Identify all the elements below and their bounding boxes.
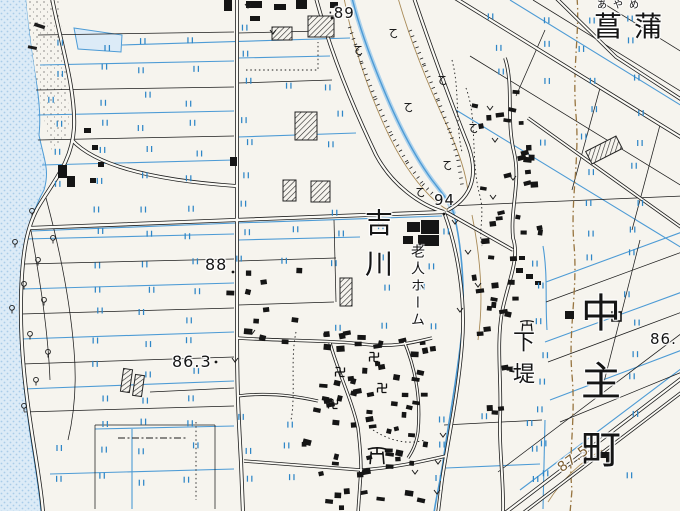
levee-tick xyxy=(455,155,458,156)
building xyxy=(386,428,392,434)
rice-paddy-symbol xyxy=(545,41,549,47)
rice-paddy-symbol xyxy=(282,258,286,264)
dry-field-symbol xyxy=(465,250,471,254)
large-building-hatched xyxy=(295,112,317,140)
field-boundary xyxy=(632,125,660,230)
building xyxy=(344,488,350,494)
building xyxy=(430,346,436,352)
building xyxy=(318,471,324,476)
building xyxy=(253,319,259,324)
field-boundary xyxy=(46,198,75,440)
rice-paddy-symbol xyxy=(543,352,547,358)
mulberry-field-symbol xyxy=(390,30,397,38)
rice-paddy-symbol xyxy=(139,67,143,73)
building xyxy=(490,297,498,302)
large-building-hatched xyxy=(133,374,145,396)
road-casing xyxy=(505,378,680,511)
temple-manji-symbol xyxy=(378,384,387,393)
levee-tick xyxy=(367,79,370,80)
building xyxy=(92,145,98,150)
levee-tick xyxy=(450,138,453,139)
rice-paddy-symbol xyxy=(248,139,252,145)
building xyxy=(410,351,418,357)
levee-tick xyxy=(441,111,444,112)
rice-paddy-symbol xyxy=(185,233,189,239)
building xyxy=(274,4,286,10)
map-symbols xyxy=(10,4,644,494)
levee-tick xyxy=(459,178,463,179)
building xyxy=(376,497,385,502)
rice-paddy-symbol xyxy=(93,338,97,344)
rice-paddy-symbol xyxy=(139,448,143,454)
building xyxy=(516,268,523,273)
building xyxy=(472,274,477,281)
rice-paddy-symbol xyxy=(336,325,340,331)
rice-paddy-symbol xyxy=(103,421,107,427)
building xyxy=(416,370,424,376)
building xyxy=(250,16,260,21)
rice-paddy-symbol xyxy=(193,258,197,264)
rice-paddy-symbol xyxy=(497,45,501,51)
water-channel xyxy=(95,426,234,429)
rice-paddy-symbol xyxy=(533,261,537,267)
rice-paddy-symbol xyxy=(141,207,145,213)
dry-field-symbol xyxy=(412,470,418,474)
building xyxy=(322,396,330,401)
field-boundary xyxy=(238,258,336,261)
building xyxy=(565,311,574,319)
municipal-boundary-line xyxy=(570,0,578,511)
building xyxy=(366,410,372,415)
levee-tick xyxy=(422,63,425,64)
rice-paddy-symbol xyxy=(482,413,486,419)
levee-tick xyxy=(434,93,437,94)
field-boundary xyxy=(546,252,680,302)
rice-paddy-symbol xyxy=(242,117,246,123)
levee-tick xyxy=(420,58,423,59)
building xyxy=(391,401,398,406)
rice-paddy-symbol xyxy=(287,83,291,89)
building xyxy=(501,365,508,371)
levee-tick xyxy=(429,82,432,83)
map-canvas: あやめ 菖蒲 吉川 老人ホーム 下堤 中主町 ·89 94 88 86.3 86… xyxy=(0,0,680,511)
large-building-hatched xyxy=(340,278,352,306)
building xyxy=(348,376,355,381)
levee-tick xyxy=(381,115,384,116)
field-boundary xyxy=(604,240,640,382)
building xyxy=(333,453,339,460)
field-boundary xyxy=(238,80,332,83)
building xyxy=(481,238,490,244)
building xyxy=(420,341,426,345)
water-channel xyxy=(238,237,360,240)
rice-paddy-symbol xyxy=(633,351,637,357)
building xyxy=(355,342,362,347)
rice-paddy-symbol xyxy=(184,477,188,483)
water-channel xyxy=(21,332,234,339)
road-fill xyxy=(446,212,513,250)
building xyxy=(405,490,414,497)
rice-paddy-symbol xyxy=(146,92,150,98)
road-casing xyxy=(414,0,473,210)
spot-height-dot xyxy=(232,271,235,274)
rice-paddy-symbol xyxy=(284,442,288,448)
building xyxy=(362,368,367,374)
rice-paddy-symbol xyxy=(590,18,594,24)
levee-tick xyxy=(371,91,374,92)
building xyxy=(323,344,331,351)
building xyxy=(515,215,521,220)
building xyxy=(357,335,366,340)
building xyxy=(512,90,519,94)
rice-paddy-symbol xyxy=(382,323,386,329)
large-building-hatched xyxy=(120,368,132,392)
building xyxy=(296,0,307,9)
roads xyxy=(21,0,680,511)
large-building-hatched xyxy=(272,27,292,40)
lake-and-shore xyxy=(0,0,122,511)
water-channel xyxy=(510,0,680,106)
shrine-torii-symbol xyxy=(520,321,534,333)
building xyxy=(421,393,428,397)
building xyxy=(407,222,420,232)
broadleaf-tree-symbol xyxy=(34,377,39,385)
rice-paddy-symbol xyxy=(541,440,545,446)
building xyxy=(332,420,339,426)
building xyxy=(343,330,351,336)
rice-paddy-symbol xyxy=(197,151,201,157)
building xyxy=(411,377,419,382)
rice-paddy-symbol xyxy=(149,287,153,293)
building xyxy=(408,433,415,437)
footpath xyxy=(291,332,296,420)
dry-field-symbol xyxy=(487,106,493,110)
levee-tick xyxy=(374,99,377,100)
field-boundary xyxy=(38,136,234,140)
building xyxy=(245,289,251,295)
rice-paddy-symbol xyxy=(379,254,383,260)
building xyxy=(526,274,533,279)
rice-paddy-symbol xyxy=(100,473,104,479)
rice-paddy-symbol xyxy=(186,101,190,107)
field-boundary xyxy=(21,308,234,314)
building xyxy=(385,452,394,457)
building xyxy=(530,181,538,187)
rice-paddy-symbol xyxy=(628,37,632,43)
dry-field-symbol xyxy=(435,460,441,464)
building xyxy=(367,392,375,398)
rice-paddy-symbol xyxy=(55,149,59,155)
building xyxy=(351,422,357,427)
building xyxy=(406,405,413,411)
building xyxy=(230,157,237,166)
rice-paddy-symbol xyxy=(101,100,105,106)
large-building-hatched xyxy=(311,181,330,202)
rice-paddy-symbol xyxy=(536,318,540,324)
building xyxy=(291,317,298,323)
rice-paddy-symbol xyxy=(141,38,145,44)
building xyxy=(386,464,394,469)
rice-paddy-symbol xyxy=(293,226,297,232)
building xyxy=(330,2,338,8)
building xyxy=(476,288,485,293)
rice-paddy-symbol xyxy=(102,64,106,70)
levee-tick xyxy=(458,172,462,173)
dry-field-symbol xyxy=(490,195,496,199)
levee-tick xyxy=(350,33,353,34)
building xyxy=(319,384,328,388)
levee-tick xyxy=(402,155,405,157)
levee-tick xyxy=(399,150,402,152)
building xyxy=(395,457,401,462)
levee-tick xyxy=(364,74,367,75)
field-boundary xyxy=(30,225,50,380)
building xyxy=(480,186,487,191)
rice-paddy-symbol xyxy=(242,25,246,31)
rice-paddy-symbol xyxy=(138,125,142,131)
levee-tick xyxy=(393,139,396,141)
building xyxy=(260,279,267,285)
building xyxy=(336,346,345,353)
levee-tick xyxy=(352,38,355,39)
levee-tick xyxy=(437,100,440,101)
rice-paddy-symbol xyxy=(429,263,433,269)
building xyxy=(357,472,364,478)
temple-manji-symbol xyxy=(370,353,379,362)
levee-tick xyxy=(423,65,426,66)
broadleaf-tree-symbol xyxy=(36,257,41,265)
levee-tick xyxy=(422,183,425,186)
building xyxy=(488,255,494,259)
levee-tick xyxy=(453,149,456,150)
building xyxy=(478,123,484,129)
rice-paddy-symbol xyxy=(146,341,150,347)
building xyxy=(226,290,234,295)
road-fill xyxy=(244,461,361,470)
building xyxy=(538,229,543,235)
rice-paddy-symbol xyxy=(194,442,198,448)
levee-tick xyxy=(449,132,452,133)
building xyxy=(409,461,414,466)
dry-field-symbol xyxy=(440,433,446,437)
levee-tick xyxy=(386,126,389,127)
levee-tick xyxy=(376,104,379,105)
field-boundary xyxy=(22,357,234,364)
inlet-pond xyxy=(74,28,122,52)
rice-paddy-symbol xyxy=(102,447,106,453)
rice-paddy-symbol xyxy=(638,140,642,146)
building xyxy=(491,282,499,288)
building xyxy=(395,449,403,456)
river xyxy=(352,0,463,511)
rice-paddy-symbol xyxy=(146,371,150,377)
building xyxy=(58,165,67,178)
levee-tick xyxy=(406,162,409,164)
building xyxy=(375,362,381,367)
building xyxy=(529,155,535,161)
rice-paddy-symbol xyxy=(243,51,247,57)
large-building-hatched xyxy=(308,16,334,37)
building xyxy=(334,492,341,498)
monument-square xyxy=(612,312,621,321)
levee-tick xyxy=(425,71,428,72)
spot-height-dot xyxy=(215,361,218,364)
building xyxy=(525,170,531,175)
rice-paddy-symbol xyxy=(195,288,199,294)
building xyxy=(477,331,484,336)
levee-tick xyxy=(417,176,420,178)
rice-paddy-symbol xyxy=(586,200,590,206)
rice-paddy-symbol xyxy=(329,141,333,147)
levee-tick xyxy=(369,85,372,86)
building xyxy=(393,374,400,381)
rice-paddy-symbol xyxy=(241,201,245,207)
building xyxy=(421,220,439,234)
building xyxy=(67,176,75,187)
rice-paddy-symbol xyxy=(545,78,549,84)
building xyxy=(84,128,91,133)
rice-paddy-symbol xyxy=(189,206,193,212)
building xyxy=(332,461,339,465)
rice-paddy-symbol xyxy=(103,395,107,401)
levee-tick xyxy=(457,166,461,167)
building xyxy=(244,328,253,335)
building xyxy=(491,302,496,308)
rice-paddy-symbol xyxy=(630,373,634,379)
rice-paddy-symbol xyxy=(187,317,191,323)
field-boundary xyxy=(24,259,234,264)
building xyxy=(487,405,493,411)
water-channel xyxy=(50,469,234,474)
building xyxy=(521,230,527,234)
rice-paddy-symbol xyxy=(326,84,330,90)
water-channel xyxy=(40,61,234,65)
broadleaf-tree-symbol xyxy=(51,235,56,243)
building xyxy=(282,339,289,344)
mulberry-field-symbol xyxy=(405,104,412,112)
building xyxy=(497,210,505,215)
contour-lines xyxy=(344,0,602,502)
levee-tick xyxy=(420,181,423,183)
building xyxy=(369,424,377,428)
rice-paddy-symbol xyxy=(194,368,198,374)
building xyxy=(495,112,504,117)
water-channel xyxy=(22,283,234,289)
building xyxy=(519,121,524,125)
building xyxy=(365,416,373,422)
rice-paddy-symbol xyxy=(540,379,544,385)
levee-tick xyxy=(418,52,421,53)
building xyxy=(519,256,525,260)
levee-tick xyxy=(354,44,357,45)
rice-paddy-symbol xyxy=(100,147,104,153)
levee-tick xyxy=(384,120,387,121)
rice-paddy-symbol xyxy=(187,337,191,343)
rice-paddy-symbol xyxy=(440,442,444,448)
levee-tick xyxy=(456,160,460,161)
rice-paddy-symbol xyxy=(632,163,636,169)
building xyxy=(296,268,302,274)
rice-paddy-symbol xyxy=(338,111,342,117)
dry-field-symbol xyxy=(475,283,481,287)
rice-paddy-symbol xyxy=(139,480,143,486)
building xyxy=(402,393,409,397)
building xyxy=(512,297,518,301)
building xyxy=(333,380,341,387)
building xyxy=(526,145,532,151)
rice-paddy-symbol xyxy=(57,445,61,451)
rice-paddy-symbol xyxy=(94,206,98,212)
building xyxy=(483,326,491,332)
rice-paddy-symbol xyxy=(444,228,448,234)
rice-paddy-symbol xyxy=(141,419,145,425)
levee-tick xyxy=(427,76,430,77)
rice-paddy-symbol xyxy=(245,229,249,235)
rice-paddy-symbol xyxy=(589,169,593,175)
rice-paddy-symbol xyxy=(103,120,107,126)
rice-paddy-symbol xyxy=(139,309,143,315)
rice-paddy-symbol xyxy=(57,476,61,482)
building xyxy=(489,221,496,227)
building xyxy=(313,407,321,413)
building xyxy=(224,0,232,11)
rice-paddy-symbol xyxy=(538,406,542,412)
levee-tick xyxy=(405,160,408,162)
rice-paddy-symbol xyxy=(589,231,593,237)
levee-tick xyxy=(426,188,429,191)
mulberry-field-symbol xyxy=(444,162,451,170)
rice-paddy-symbol xyxy=(587,254,591,260)
rice-paddy-symbol xyxy=(142,261,146,267)
building xyxy=(508,280,515,285)
levee-tick xyxy=(432,87,435,88)
building xyxy=(496,216,503,220)
rice-paddy-symbol xyxy=(246,448,250,454)
rice-paddy-symbol xyxy=(244,172,248,178)
levee-tick xyxy=(390,134,393,136)
broadleaf-tree-symbol xyxy=(42,297,47,305)
rice-paddy-symbol xyxy=(194,66,198,72)
rice-paddy-symbol xyxy=(98,307,102,313)
road-casing xyxy=(523,392,680,511)
field-boundary xyxy=(24,406,234,412)
building xyxy=(246,270,251,275)
building xyxy=(510,256,517,261)
spot-height-dot xyxy=(331,17,334,20)
levee-tick xyxy=(413,41,416,42)
levee-tick xyxy=(373,96,376,97)
levee-tick xyxy=(396,145,399,147)
shrine-torii-symbol xyxy=(368,448,386,464)
levee-tick xyxy=(409,30,412,31)
field-boundary xyxy=(598,0,680,52)
building xyxy=(606,456,614,466)
levee-tick xyxy=(413,172,416,174)
rice-paddy-symbol xyxy=(288,422,292,428)
mulberry-field-symbol xyxy=(417,189,424,197)
building xyxy=(323,333,330,337)
road-fill xyxy=(414,0,473,210)
building xyxy=(403,236,413,244)
building xyxy=(486,115,491,121)
field-boundary xyxy=(38,32,234,35)
levee-tick xyxy=(430,192,433,195)
large-building-hatched xyxy=(283,180,296,201)
rice-paddy-symbol xyxy=(147,146,151,152)
building xyxy=(422,347,429,354)
levee-tick xyxy=(460,184,464,185)
spot-height-dot xyxy=(443,213,446,216)
